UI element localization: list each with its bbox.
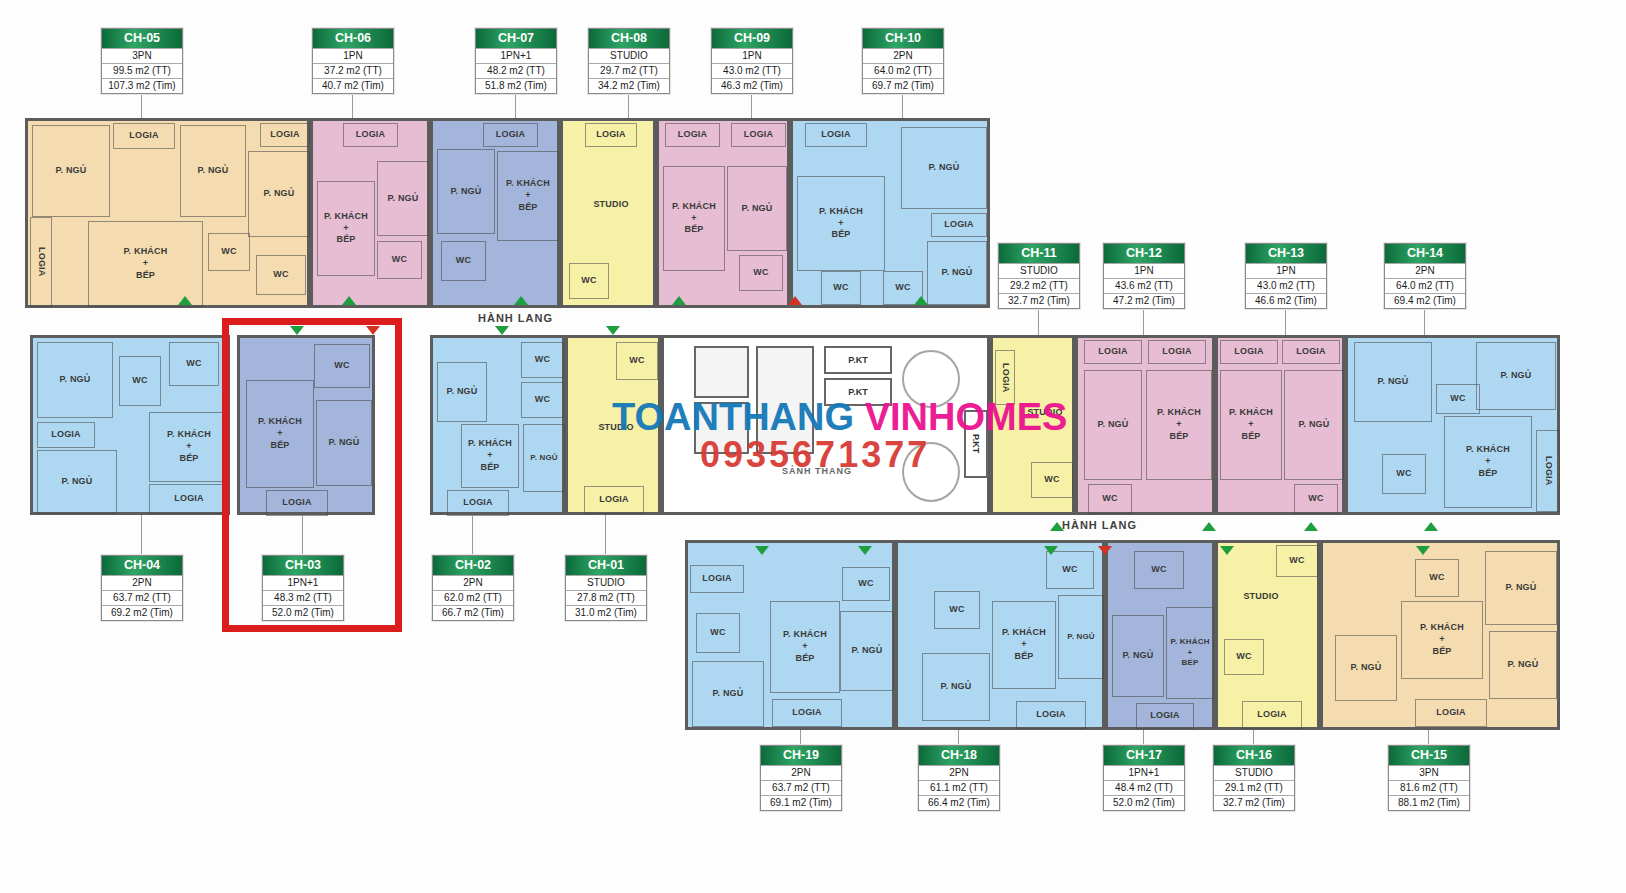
leader-line	[800, 730, 801, 745]
unit-ch08: LOGIA STUDIO WC	[560, 118, 656, 308]
door-marker-icon	[606, 326, 620, 335]
leader-line	[1253, 730, 1254, 745]
room-logia: LOGIA	[690, 565, 744, 593]
room-bedroom: P. NGỦ	[32, 125, 110, 217]
unit-type: STUDIO	[1214, 765, 1294, 780]
unit-area-tt: 29.2 m2 (TT)	[999, 278, 1079, 293]
unit-area-tim: 66.4 m2 (Tim)	[919, 795, 999, 810]
room-wc: WC	[934, 591, 980, 629]
room-living-kitchen: P. KHÁCH+BẾP	[797, 176, 885, 271]
unit-ch18: WC P. KHÁCH+BẾP P. NGỦ WC P. NGỦ LOGIA	[895, 540, 1105, 730]
unit-code: CH-12	[1104, 244, 1184, 263]
unit-code: CH-18	[919, 746, 999, 765]
door-marker-icon	[1416, 546, 1430, 555]
unit-code: CH-06	[313, 29, 393, 48]
room-bedroom: P. NGỦ	[1084, 370, 1142, 480]
unit-area-tt: 48.2 m2 (TT)	[476, 63, 556, 78]
room-wc: WC	[521, 342, 564, 378]
leader-line	[605, 515, 606, 555]
room-logia: LOGIA	[1536, 430, 1560, 512]
room-wc: WC	[1382, 454, 1426, 494]
unit-area-tt: 48.4 m2 (TT)	[1104, 780, 1184, 795]
unit-area-tim: 69.1 m2 (Tim)	[761, 795, 841, 810]
info-box-ch02: CH-02 2PN 62.0 m2 (TT) 66.7 m2 (Tim)	[432, 555, 514, 621]
room-living-kitchen: P. KHÁCH+BẾP	[88, 221, 203, 307]
room-wc: WC	[377, 241, 422, 279]
unit-area-tt: 99.5 m2 (TT)	[102, 63, 182, 78]
room-bedroom: P. NGỦ	[1476, 342, 1556, 410]
room-bedroom: P. NGỦ	[180, 125, 246, 217]
leader-line	[1038, 307, 1039, 335]
room-wc: WC	[1046, 551, 1094, 589]
room-wc: WC	[119, 356, 161, 406]
unit-type: 2PN	[1385, 263, 1465, 278]
room-living-kitchen: P. KHÁCH+BẾP	[663, 166, 725, 271]
unit-ch16: WC STUDIO WC LOGIA	[1215, 540, 1320, 730]
unit-area-tt: 63.7 m2 (TT)	[102, 590, 182, 605]
door-marker-icon	[858, 546, 872, 555]
room-bedroom: P. NGỦ	[1058, 595, 1104, 679]
unit-type: 1PN	[712, 48, 792, 63]
door-marker-icon	[514, 296, 528, 305]
unit-type: 1PN	[1246, 263, 1326, 278]
room-living-kitchen: P. KHÁCH+BẾP	[1444, 416, 1532, 508]
door-marker-red-icon	[1098, 546, 1112, 555]
room-logia: LOGIA	[343, 123, 398, 147]
room-bedroom: P. NGỦ	[901, 127, 987, 209]
info-box-ch19: CH-19 2PN 63.7 m2 (TT) 69.1 m2 (Tim)	[760, 745, 842, 811]
room-living-kitchen: P. KHÁCH+BẾP	[461, 424, 519, 488]
unit-type: 2PN	[433, 575, 513, 590]
room-logia: LOGIA	[731, 123, 786, 147]
room-logia: LOGIA	[772, 699, 842, 727]
room-wc: WC	[739, 255, 783, 291]
unit-ch06: LOGIA P. KHÁCH+BẾP P. NGỦ WC	[310, 118, 430, 308]
room-bedroom: P. NGỦ	[37, 450, 117, 514]
info-box-ch13: CH-13 1PN 43.0 m2 (TT) 46.6 m2 (Tim)	[1245, 243, 1327, 309]
unit-code: CH-13	[1246, 244, 1326, 263]
unit-type: 1PN	[1104, 263, 1184, 278]
room-bedroom: P. NGỦ	[377, 161, 429, 236]
unit-area-tt: 64.0 m2 (TT)	[863, 63, 943, 78]
info-box-ch07: CH-07 1PN+1 48.2 m2 (TT) 51.8 m2 (Tim)	[475, 28, 557, 94]
room-living-kitchen: P. KHÁCH+BẾP	[317, 181, 375, 276]
room-logia: LOGIA	[931, 213, 987, 237]
unit-area-tt: 37.2 m2 (TT)	[313, 63, 393, 78]
unit-type: 3PN	[1389, 765, 1469, 780]
unit-area-tim: 107.3 m2 (Tim)	[102, 78, 182, 93]
leader-line	[1424, 307, 1425, 335]
unit-area-tim: 32.7 m2 (Tim)	[1214, 795, 1294, 810]
unit-area-tim: 69.4 m2 (Tim)	[1385, 293, 1465, 308]
unit-type: 3PN	[102, 48, 182, 63]
room-logia: LOGIA	[30, 217, 52, 307]
unit-code: CH-15	[1389, 746, 1469, 765]
unit-type: 1PN+1	[1104, 765, 1184, 780]
room-logia: LOGIA	[805, 123, 867, 147]
room-logia: LOGIA	[584, 486, 644, 514]
room-living-kitchen: P. KHÁCH+BẾP	[149, 412, 229, 482]
watermark-phone: 0935671377	[700, 434, 930, 476]
unit-type: 2PN	[919, 765, 999, 780]
room-logia: LOGIA	[1148, 340, 1206, 364]
room-living-kitchen: P. KHÁCH+BẾP	[497, 151, 559, 241]
room-wc: WC	[842, 567, 890, 601]
room-bedroom: P. NGỦ	[1284, 370, 1344, 480]
room-bedroom: P. NGỦ	[523, 424, 565, 492]
unit-ch19: LOGIA WC P. NGỦ P. KHÁCH+BẾP WC P. NGỦ L…	[685, 540, 895, 730]
unit-area-tim: 69.2 m2 (Tim)	[102, 605, 182, 620]
info-box-ch16: CH-16 STUDIO 29.1 m2 (TT) 32.7 m2 (Tim)	[1213, 745, 1295, 811]
unit-type: 1PN	[313, 48, 393, 63]
info-box-ch04: CH-04 2PN 63.7 m2 (TT) 69.2 m2 (Tim)	[101, 555, 183, 621]
info-box-ch08: CH-08 STUDIO 29.7 m2 (TT) 34.2 m2 (Tim)	[588, 28, 670, 94]
leader-line	[515, 92, 516, 118]
unit-area-tt: 61.1 m2 (TT)	[919, 780, 999, 795]
room-logia: LOGIA	[665, 123, 720, 147]
door-marker-icon	[672, 296, 686, 305]
unit-code: CH-16	[1214, 746, 1294, 765]
room-wc: WC	[208, 233, 250, 271]
room-bedroom: P. NGỦ	[1112, 615, 1164, 697]
info-box-ch17: CH-17 1PN+1 48.4 m2 (TT) 52.0 m2 (Tim)	[1103, 745, 1185, 811]
room-wc: WC	[169, 342, 219, 386]
info-box-ch01: CH-01 STUDIO 27.8 m2 (TT) 31.0 m2 (Tim)	[565, 555, 647, 621]
room-wc: WC	[441, 241, 486, 281]
room-logia: LOGIA	[483, 123, 538, 147]
room-logia: LOGIA	[149, 484, 229, 514]
room-bedroom: P. NGỦ	[1354, 342, 1432, 422]
unit-area-tim: 31.0 m2 (Tim)	[566, 605, 646, 620]
unit-area-tim: 51.8 m2 (Tim)	[476, 78, 556, 93]
room-logia: LOGIA	[1220, 340, 1278, 364]
room-wc: WC	[821, 271, 861, 305]
door-marker-icon	[1202, 522, 1216, 531]
unit-area-tim: 40.7 m2 (Tim)	[313, 78, 393, 93]
door-marker-icon	[495, 326, 509, 335]
room-bedroom: P. NGỦ	[248, 151, 310, 237]
unit-area-tt: 81.6 m2 (TT)	[1389, 780, 1469, 795]
room-logia: LOGIA	[447, 490, 509, 516]
unit-area-tim: 47.2 m2 (Tim)	[1104, 293, 1184, 308]
unit-area-tim: 69.7 m2 (Tim)	[863, 78, 943, 93]
unit-ch09: LOGIA LOGIA P. KHÁCH+BẾP P. NGỦ WC	[656, 118, 790, 308]
unit-area-tim: 46.3 m2 (Tim)	[712, 78, 792, 93]
room-wc: WC	[1224, 639, 1264, 675]
unit-area-tt: 29.7 m2 (TT)	[589, 63, 669, 78]
info-box-ch09: CH-09 1PN 43.0 m2 (TT) 46.3 m2 (Tim)	[711, 28, 793, 94]
unit-ch10: LOGIA P. KHÁCH+BẾP P. NGỦ LOGIA P. NGỦ W…	[790, 118, 990, 308]
corridor-label: HÀNH LANG	[1062, 519, 1137, 531]
room-bedroom: P. NGỦ	[922, 653, 990, 721]
room-logia: LOGIA	[1084, 340, 1142, 364]
unit-code: CH-19	[761, 746, 841, 765]
info-box-ch15: CH-15 3PN 81.6 m2 (TT) 88.1 m2 (Tim)	[1388, 745, 1470, 811]
room-bedroom: P. NGỦ	[437, 362, 487, 422]
door-marker-icon	[1044, 546, 1058, 555]
unit-type: STUDIO	[999, 263, 1079, 278]
room-logia: LOGIA	[1136, 703, 1194, 729]
highlight-box-ch03	[222, 318, 402, 632]
leader-line	[751, 92, 752, 118]
room-living-kitchen: P. KHÁCH+BẾP	[992, 601, 1056, 689]
unit-code: CH-05	[102, 29, 182, 48]
leader-line	[902, 92, 903, 118]
room-living-kitchen: P. KHÁCH+BẾP	[1401, 601, 1483, 679]
room-logia: LOGIA	[1016, 701, 1086, 729]
unit-area-tim: 52.0 m2 (Tim)	[1104, 795, 1184, 810]
leader-line	[141, 515, 142, 555]
unit-area-tt: 62.0 m2 (TT)	[433, 590, 513, 605]
unit-area-tim: 88.1 m2 (Tim)	[1389, 795, 1469, 810]
room-wc: WC	[1294, 484, 1338, 514]
unit-area-tim: 66.7 m2 (Tim)	[433, 605, 513, 620]
unit-area-tim: 34.2 m2 (Tim)	[589, 78, 669, 93]
unit-code: CH-08	[589, 29, 669, 48]
leader-line	[1285, 307, 1286, 335]
room-bedroom: P. NGỦ	[927, 241, 987, 305]
unit-code: CH-14	[1385, 244, 1465, 263]
info-box-ch06: CH-06 1PN 37.2 m2 (TT) 40.7 m2 (Tim)	[312, 28, 394, 94]
door-marker-icon	[342, 296, 356, 305]
unit-code: CH-04	[102, 556, 182, 575]
door-marker-red-icon	[788, 296, 802, 305]
unit-code: CH-17	[1104, 746, 1184, 765]
door-marker-icon	[1220, 546, 1234, 555]
door-marker-icon	[1304, 522, 1318, 531]
room-bedroom: P. NGỦ	[1489, 631, 1557, 699]
unit-type: 1PN+1	[476, 48, 556, 63]
unit-area-tt: 29.1 m2 (TT)	[1214, 780, 1294, 795]
unit-area-tt: 64.0 m2 (TT)	[1385, 278, 1465, 293]
door-marker-icon	[755, 546, 769, 555]
room-wc: WC	[1088, 484, 1132, 514]
info-box-ch10: CH-10 2PN 64.0 m2 (TT) 69.7 m2 (Tim)	[862, 28, 944, 94]
room-bedroom: P. NGỦ	[437, 149, 495, 234]
room-bedroom: P. NGỦ	[1485, 551, 1557, 625]
room-bedroom: P. NGỦ	[727, 166, 787, 251]
leader-line	[958, 730, 959, 745]
unit-code: CH-10	[863, 29, 943, 48]
door-marker-icon	[914, 296, 928, 305]
room-studio: STUDIO	[567, 151, 655, 259]
leader-line	[472, 515, 473, 555]
room-studio: STUDIO	[1226, 567, 1296, 627]
room-living-kitchen: P. KHÁCH+BẾP	[1166, 607, 1214, 699]
leader-line	[1428, 730, 1429, 745]
unit-type: 2PN	[102, 575, 182, 590]
unit-ch15: WC P. KHÁCH+BẾP P. NGỦ P. NGỦ P. NGỦ LOG…	[1320, 540, 1560, 730]
room-wc: WC	[1031, 462, 1073, 498]
room-logia: LOGIA	[1242, 701, 1302, 729]
room-bedroom: P. NGỦ	[37, 342, 113, 418]
room-logia: LOGIA	[1415, 699, 1487, 727]
unit-area-tt: 43.0 m2 (TT)	[712, 63, 792, 78]
room-wc: WC	[1134, 551, 1184, 589]
unit-type: STUDIO	[566, 575, 646, 590]
unit-type: STUDIO	[589, 48, 669, 63]
room-logia: LOGIA	[37, 422, 95, 448]
unit-ch07: LOGIA P. NGỦ P. KHÁCH+BẾP WC	[430, 118, 560, 308]
technical-room: P.KT	[824, 346, 892, 374]
info-box-ch05: CH-05 3PN 99.5 m2 (TT) 107.3 m2 (Tim)	[101, 28, 183, 94]
unit-ch05: LOGIA P. NGỦ P. NGỦ LOGIA P. NGỦ LOGIA P…	[25, 118, 310, 308]
unit-type: 2PN	[863, 48, 943, 63]
room-wc: WC	[521, 382, 564, 418]
unit-area-tim: 32.7 m2 (Tim)	[999, 293, 1079, 308]
unit-type: 2PN	[761, 765, 841, 780]
leader-line	[141, 92, 142, 118]
unit-area-tim: 46.6 m2 (Tim)	[1246, 293, 1326, 308]
unit-area-tt: 43.6 m2 (TT)	[1104, 278, 1184, 293]
unit-code: CH-11	[999, 244, 1079, 263]
info-box-ch12: CH-12 1PN 43.6 m2 (TT) 47.2 m2 (Tim)	[1103, 243, 1185, 309]
room-logia: LOGIA	[1282, 340, 1340, 364]
elevator-shaft	[694, 346, 749, 398]
unit-ch04: P. NGỦ WC WC P. KHÁCH+BẾP LOGIA P. NGỦ L…	[30, 335, 230, 515]
watermark-brand-pink: VINHOMES	[865, 396, 1068, 438]
unit-ch02: WC WC P. NGỦ P. KHÁCH+BẾP P. NGỦ LOGIA	[430, 335, 565, 515]
floor-plan: LOGIA P. NGỦ P. NGỦ LOGIA P. NGỦ LOGIA P…	[0, 0, 1626, 893]
door-marker-icon	[178, 296, 192, 305]
unit-area-tt: 27.8 m2 (TT)	[566, 590, 646, 605]
info-box-ch11: CH-11 STUDIO 29.2 m2 (TT) 32.7 m2 (Tim)	[998, 243, 1080, 309]
room-wc: WC	[1415, 559, 1459, 597]
unit-ch13: LOGIA LOGIA P. KHÁCH+BẾP P. NGỦ WC	[1215, 335, 1345, 515]
room-wc: WC	[569, 263, 609, 299]
unit-area-tt: 43.0 m2 (TT)	[1246, 278, 1326, 293]
room-living-kitchen: P. KHÁCH+BẾP	[770, 601, 840, 693]
door-marker-icon	[1050, 522, 1064, 531]
room-logia: LOGIA	[113, 123, 175, 149]
room-wc: WC	[1436, 384, 1480, 414]
unit-code: CH-09	[712, 29, 792, 48]
corridor-label: HÀNH LANG	[478, 312, 553, 324]
watermark-brand: TOANTHANG VINHOMES	[612, 396, 1067, 439]
unit-code: CH-02	[433, 556, 513, 575]
unit-code: CH-01	[566, 556, 646, 575]
unit-ch12: LOGIA LOGIA P. NGỦ P. KHÁCH+BẾP WC	[1075, 335, 1215, 515]
info-box-ch14: CH-14 2PN 64.0 m2 (TT) 69.4 m2 (Tim)	[1384, 243, 1466, 309]
room-living-kitchen: P. KHÁCH+BẾP	[1146, 370, 1212, 480]
unit-code: CH-07	[476, 29, 556, 48]
leader-line	[628, 92, 629, 118]
leader-line	[1143, 730, 1144, 745]
room-wc: WC	[256, 255, 306, 295]
room-wc: WC	[696, 613, 740, 653]
room-bedroom: P. NGỦ	[692, 661, 764, 727]
watermark-brand-blue: TOANTHANG	[612, 396, 854, 438]
room-logia: LOGIA	[585, 123, 637, 147]
room-wc: WC	[616, 342, 658, 380]
info-box-ch18: CH-18 2PN 61.1 m2 (TT) 66.4 m2 (Tim)	[918, 745, 1000, 811]
room-logia: LOGIA	[260, 123, 310, 147]
unit-area-tt: 63.7 m2 (TT)	[761, 780, 841, 795]
unit-ch17: WC P. NGỦ P. KHÁCH+BẾP LOGIA	[1105, 540, 1215, 730]
door-marker-icon	[1424, 522, 1438, 531]
room-bedroom: P. NGỦ	[1335, 635, 1397, 701]
room-living-kitchen: P. KHÁCH+BẾP	[1220, 370, 1282, 480]
room-bedroom: P. NGỦ	[840, 611, 894, 691]
leader-line	[1143, 307, 1144, 335]
unit-ch14: P. NGỦ P. NGỦ WC WC P. KHÁCH+BẾP LOGIA	[1345, 335, 1560, 515]
leader-line	[352, 92, 353, 118]
